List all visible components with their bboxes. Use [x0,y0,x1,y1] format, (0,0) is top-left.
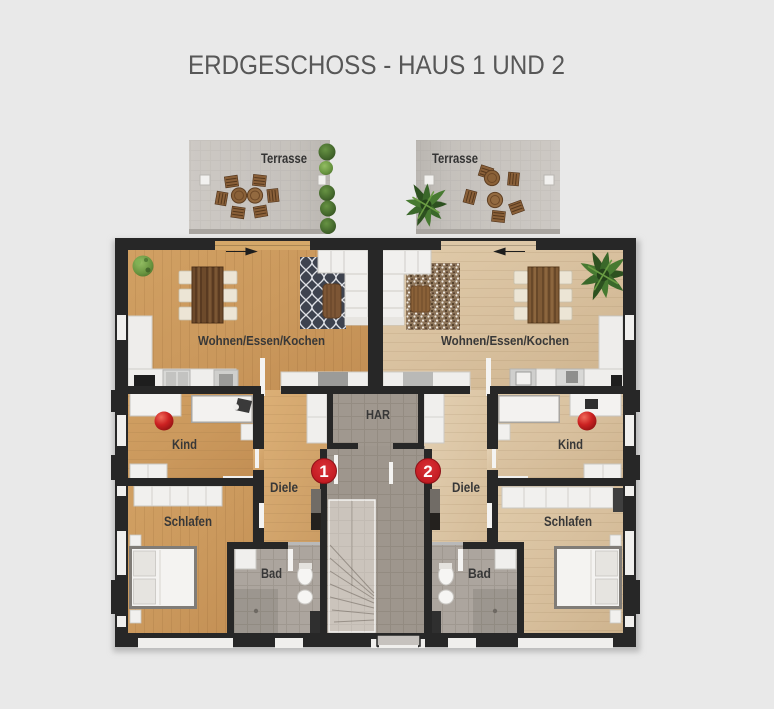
svg-text:Terrasse: Terrasse [432,151,478,166]
svg-text:ERDGESCHOSS - HAUS 1 UND 2: ERDGESCHOSS - HAUS 1 UND 2 [188,50,565,80]
svg-text:2: 2 [423,462,432,481]
svg-text:Kind: Kind [558,437,583,452]
svg-text:Wohnen/Essen/Kochen: Wohnen/Essen/Kochen [198,333,325,348]
svg-text:1: 1 [319,462,328,481]
svg-text:Schlafen: Schlafen [164,514,212,529]
svg-text:Terrasse: Terrasse [261,151,307,166]
svg-text:Diele: Diele [452,480,480,495]
svg-text:Bad: Bad [261,566,282,581]
svg-text:Kind: Kind [172,437,197,452]
svg-text:HAR: HAR [366,408,390,422]
svg-text:Bad: Bad [468,566,491,581]
svg-text:Diele: Diele [270,480,298,495]
svg-text:Schlafen: Schlafen [544,514,592,529]
svg-text:Wohnen/Essen/Kochen: Wohnen/Essen/Kochen [441,333,569,348]
